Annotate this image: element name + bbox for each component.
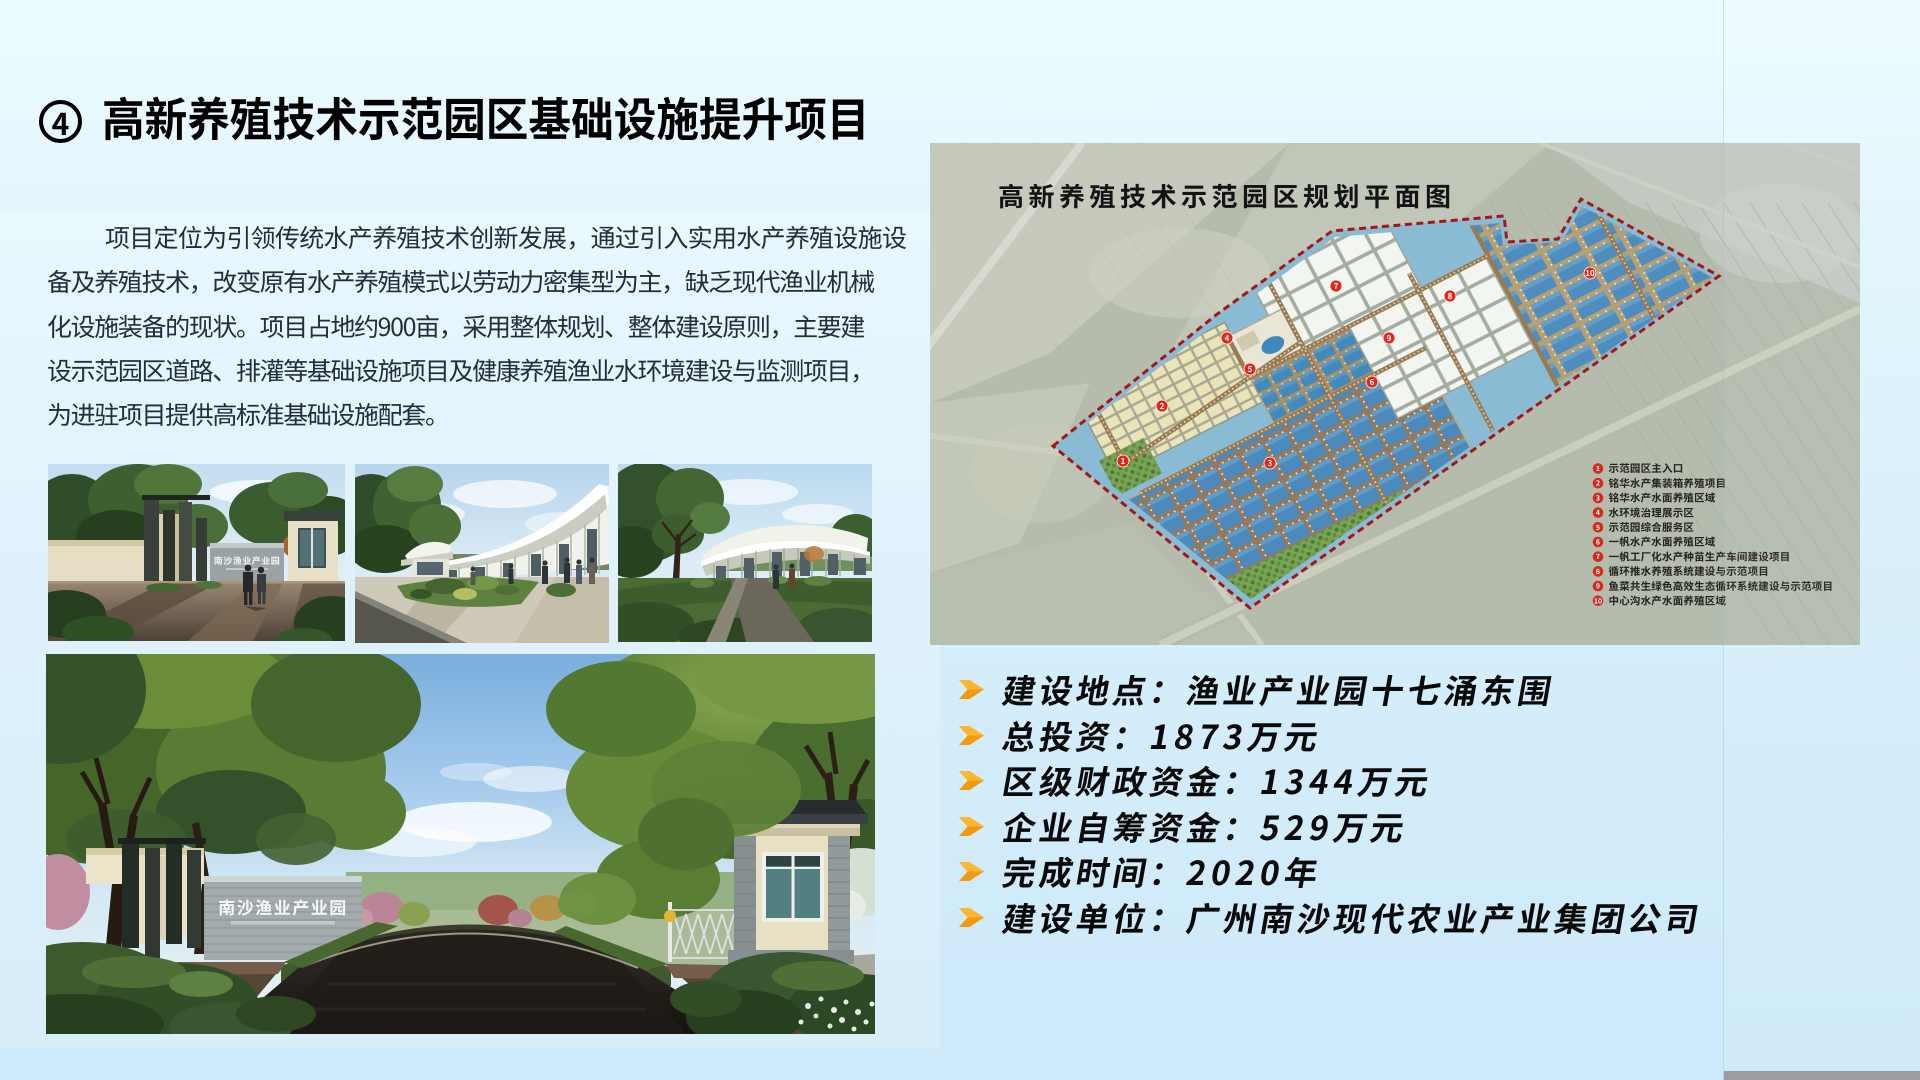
svg-text:示范园区主入口: 示范园区主入口 xyxy=(1609,461,1684,476)
svg-text:7: 7 xyxy=(1334,281,1339,292)
svg-text:高新养殖技术示范园区规划平面图: 高新养殖技术示范园区规划平面图 xyxy=(998,177,1456,214)
svg-text:9: 9 xyxy=(1387,333,1392,344)
svg-text:6: 6 xyxy=(1596,538,1600,548)
svg-text:铭华水产水面养殖区域: 铭华水产水面养殖区域 xyxy=(1609,491,1716,506)
svg-text:5: 5 xyxy=(1248,364,1253,375)
svg-text:8: 8 xyxy=(1448,291,1453,302)
svg-text:南沙渔业产业园: 南沙渔业产业园 xyxy=(218,894,348,919)
svg-text:10: 10 xyxy=(1585,268,1595,279)
svg-text:一帆水产水面养殖区域: 一帆水产水面养殖区域 xyxy=(1609,535,1716,550)
svg-text:1: 1 xyxy=(1121,456,1126,467)
svg-text:4: 4 xyxy=(1225,333,1230,344)
svg-text:4: 4 xyxy=(1596,508,1600,518)
svg-text:3: 3 xyxy=(1596,493,1600,503)
svg-text:5: 5 xyxy=(1596,523,1600,533)
svg-text:9: 9 xyxy=(1596,582,1600,592)
svg-text:8: 8 xyxy=(1596,567,1600,577)
svg-text:水环境治理展示区: 水环境治理展示区 xyxy=(1609,505,1695,520)
svg-text:1: 1 xyxy=(1596,464,1600,474)
svg-text:10: 10 xyxy=(1594,596,1602,606)
svg-text:铭华水产集装箱养殖项目: 铭华水产集装箱养殖项目 xyxy=(1609,476,1727,491)
svg-text:示范园综合服务区: 示范园综合服务区 xyxy=(1609,520,1695,535)
svg-text:3: 3 xyxy=(1268,458,1273,469)
svg-text:中心沟水产水面养殖区域: 中心沟水产水面养殖区域 xyxy=(1609,594,1727,609)
svg-text:6: 6 xyxy=(1370,377,1375,388)
svg-text:2: 2 xyxy=(1596,479,1600,489)
svg-text:2: 2 xyxy=(1160,401,1165,412)
svg-text:7: 7 xyxy=(1596,552,1600,562)
